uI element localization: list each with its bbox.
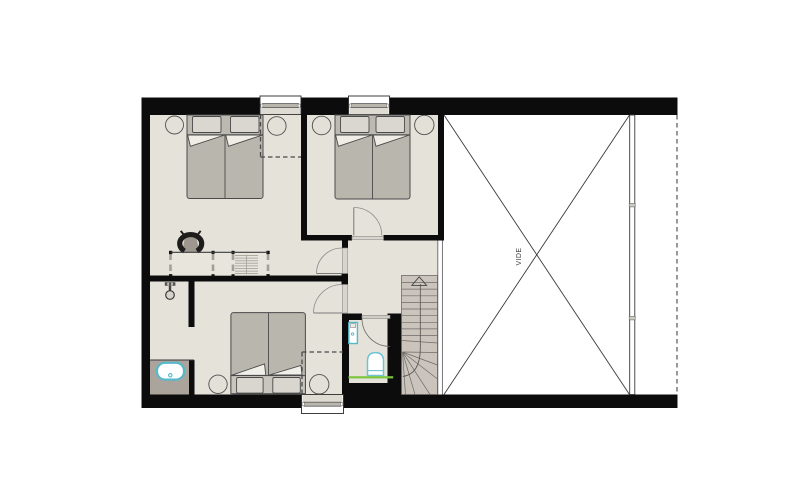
svg-text:VIDE: VIDE [516,248,523,266]
